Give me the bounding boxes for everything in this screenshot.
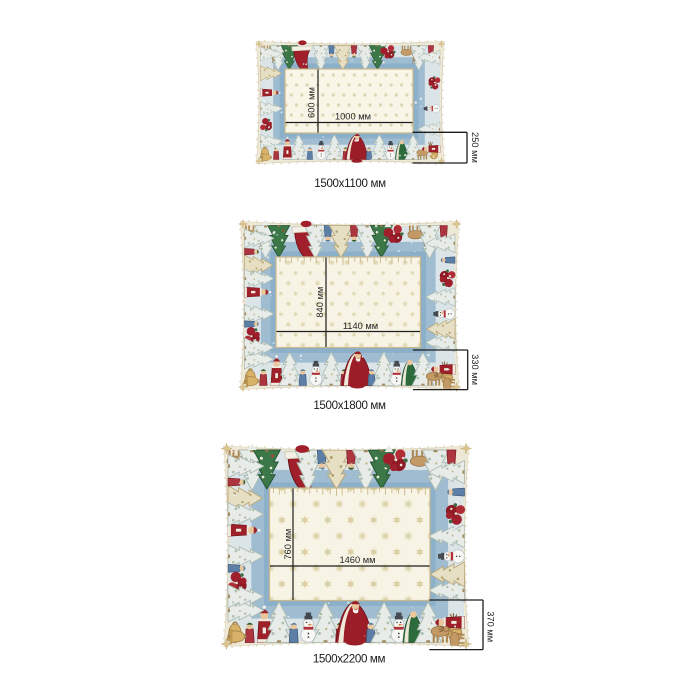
svg-text:1000 мм: 1000 мм xyxy=(335,112,371,122)
svg-text:1500х1800 мм: 1500х1800 мм xyxy=(313,399,386,412)
svg-text:250 мм: 250 мм xyxy=(470,132,480,163)
svg-text:370 мм: 370 мм xyxy=(485,611,495,642)
svg-text:330 мм: 330 мм xyxy=(470,354,480,385)
svg-text:1460 мм: 1460 мм xyxy=(339,555,375,565)
svg-text:840 мм: 840 мм xyxy=(315,287,325,318)
svg-text:1500х2200 мм: 1500х2200 мм xyxy=(313,653,386,666)
svg-text:1140 мм: 1140 мм xyxy=(343,321,378,331)
svg-text:600 мм: 600 мм xyxy=(307,87,317,118)
svg-text:1500х1100 мм: 1500х1100 мм xyxy=(314,177,386,190)
svg-text:760 мм: 760 мм xyxy=(283,529,293,560)
